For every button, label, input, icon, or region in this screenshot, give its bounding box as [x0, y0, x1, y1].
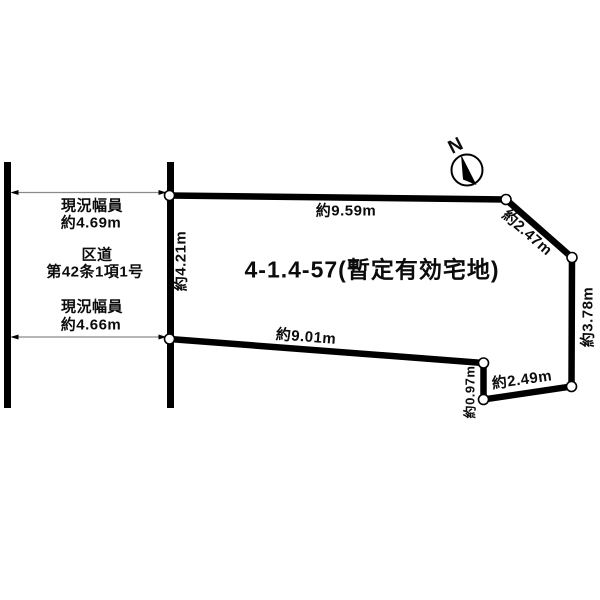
dim-south-step-edge: 約0.97m — [464, 366, 477, 419]
parcel-title: 4-1.4-57(暫定有効宅地) — [245, 259, 500, 282]
road-width-upper-value: 約4.69m — [61, 216, 122, 231]
land-survey-diagram: 現況幅員 約4.69m 区道 第42条1項1号 現況幅員 約4.66m 約4.2… — [0, 0, 600, 600]
road-width-upper-caption: 現況幅員 — [61, 199, 123, 214]
vertex-marker — [567, 382, 577, 392]
road-width-lower-value: 約4.66m — [61, 318, 122, 333]
vertex-marker — [567, 253, 577, 263]
road-article: 第42条1項1号 — [46, 265, 143, 280]
vertex-marker — [479, 358, 489, 368]
dim-north-edge: 約9.59m — [316, 204, 377, 219]
vertex-marker — [479, 395, 489, 405]
arrowhead-left-icon — [11, 335, 19, 340]
vertex-marker — [165, 191, 175, 201]
arrowhead-left-icon — [11, 190, 19, 195]
road-name: 区道 — [81, 248, 112, 263]
dim-west-edge: 約4.21m — [174, 231, 189, 292]
vertex-marker — [165, 334, 175, 344]
road-width-lower-caption: 現況幅員 — [61, 300, 123, 315]
dim-south-edge: 約9.01m — [275, 327, 337, 347]
dim-east-edge: 約3.78m — [581, 287, 596, 348]
vertex-marker — [501, 195, 511, 205]
